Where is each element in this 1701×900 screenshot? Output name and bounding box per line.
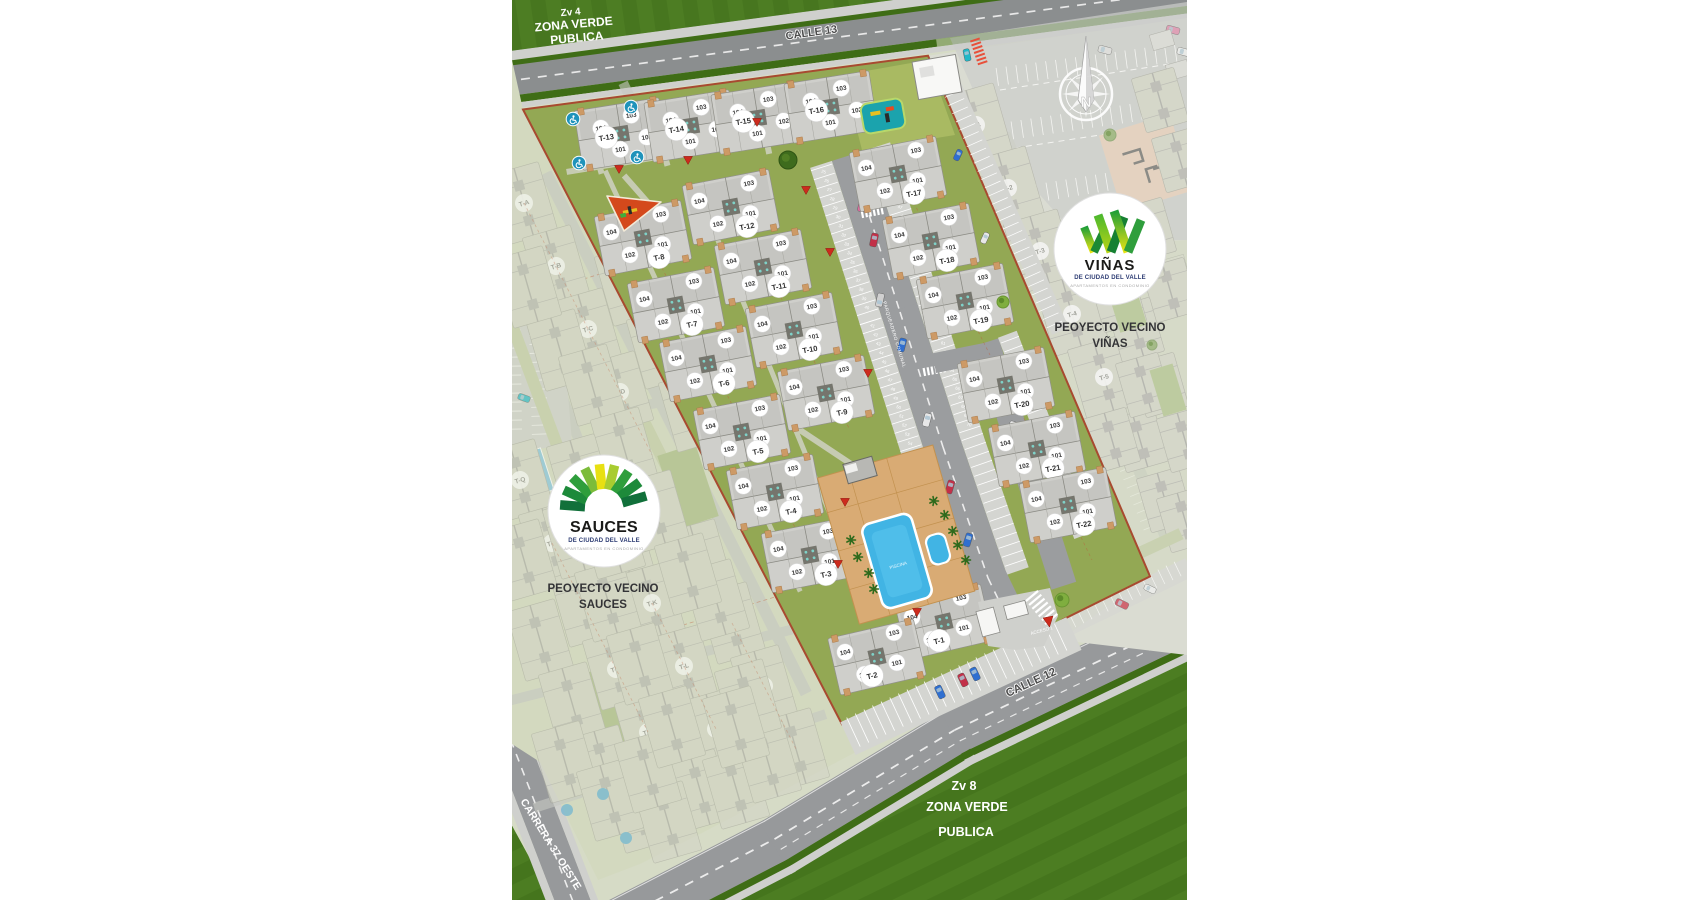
svg-text:PEOYECTO VECINO: PEOYECTO VECINO xyxy=(1055,322,1166,334)
svg-text:VIÑAS: VIÑAS xyxy=(1092,337,1127,350)
svg-text:DE CIUDAD DEL VALLE: DE CIUDAD DEL VALLE xyxy=(1074,275,1146,281)
svg-text:SAUCES: SAUCES xyxy=(570,519,638,536)
svg-text:VIÑAS: VIÑAS xyxy=(1085,256,1136,274)
svg-text:DE CIUDAD DEL VALLE: DE CIUDAD DEL VALLE xyxy=(568,538,640,544)
svg-text:SAUCES: SAUCES xyxy=(579,599,627,611)
svg-text:ZONA VERDE: ZONA VERDE xyxy=(926,800,1008,814)
svg-text:PEOYECTO VECINO: PEOYECTO VECINO xyxy=(548,583,659,595)
svg-text:APARTAMENTOS EN CONDOMINIO: APARTAMENTOS EN CONDOMINIO xyxy=(1070,283,1150,288)
svg-text:Zv 8: Zv 8 xyxy=(951,779,976,793)
svg-text:PUBLICA: PUBLICA xyxy=(938,825,994,839)
svg-text:N: N xyxy=(1081,94,1092,111)
svg-text:APARTAMENTOS EN CONDOMINIO: APARTAMENTOS EN CONDOMINIO xyxy=(564,546,644,551)
